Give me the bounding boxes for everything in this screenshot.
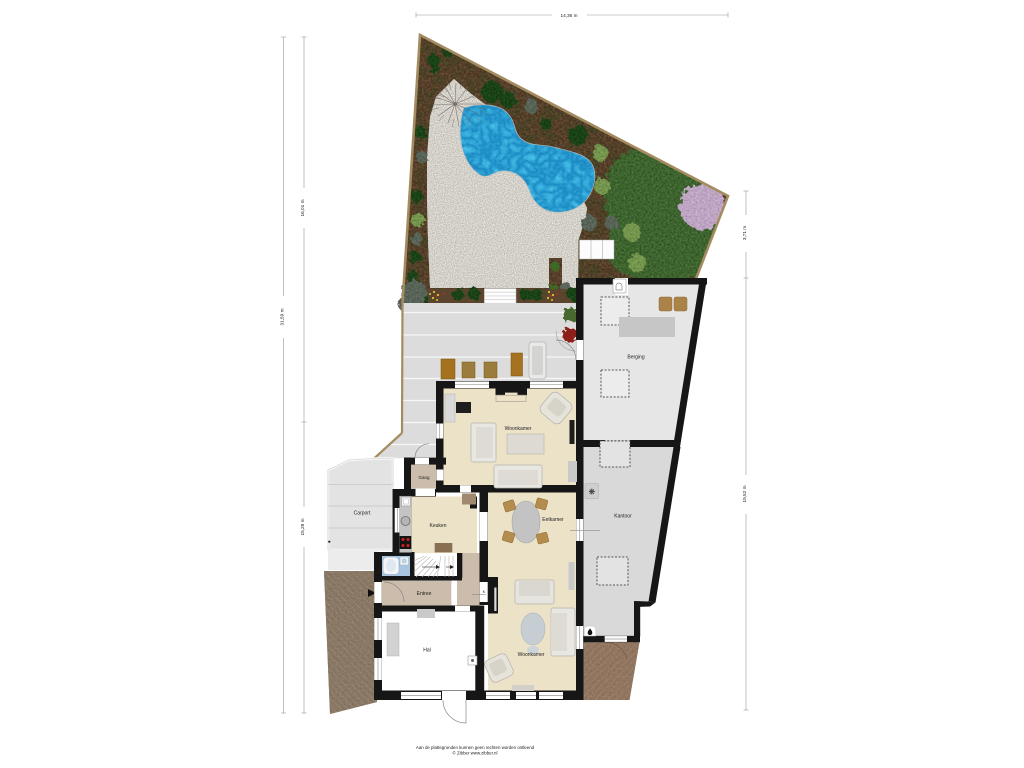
svg-text:Kantoor: Kantoor	[614, 514, 632, 520]
svg-text:Carport: Carport	[354, 511, 371, 517]
svg-text:Aan de plattegronden kunnen ge: Aan de plattegronden kunnen geen rechten…	[416, 745, 535, 750]
svg-text:Gang: Gang	[418, 475, 430, 480]
svg-text:14,36 m: 14,36 m	[561, 13, 578, 18]
svg-text:❋: ❋	[588, 488, 595, 497]
svg-text:Keuken: Keuken	[430, 523, 447, 529]
svg-text:Berging: Berging	[627, 355, 644, 361]
svg-text:Woonkamer: Woonkamer	[505, 426, 532, 432]
svg-text:K: K	[483, 589, 486, 594]
svg-text:3,71 m: 3,71 m	[742, 226, 747, 240]
svg-text:© Zibber www.zibber.nl: © Zibber www.zibber.nl	[453, 751, 498, 756]
svg-text:Hal: Hal	[423, 648, 431, 654]
svg-text:Woonkamer: Woonkamer	[518, 652, 545, 658]
svg-text:19,52 m: 19,52 m	[742, 485, 747, 502]
svg-text:31,59 m: 31,59 m	[280, 308, 285, 325]
svg-text:16,01 m: 16,01 m	[300, 199, 305, 216]
svg-text:15,28 m: 15,28 m	[300, 518, 305, 535]
svg-text:Eetkamer: Eetkamer	[542, 517, 564, 523]
svg-text:Entree: Entree	[417, 591, 432, 597]
